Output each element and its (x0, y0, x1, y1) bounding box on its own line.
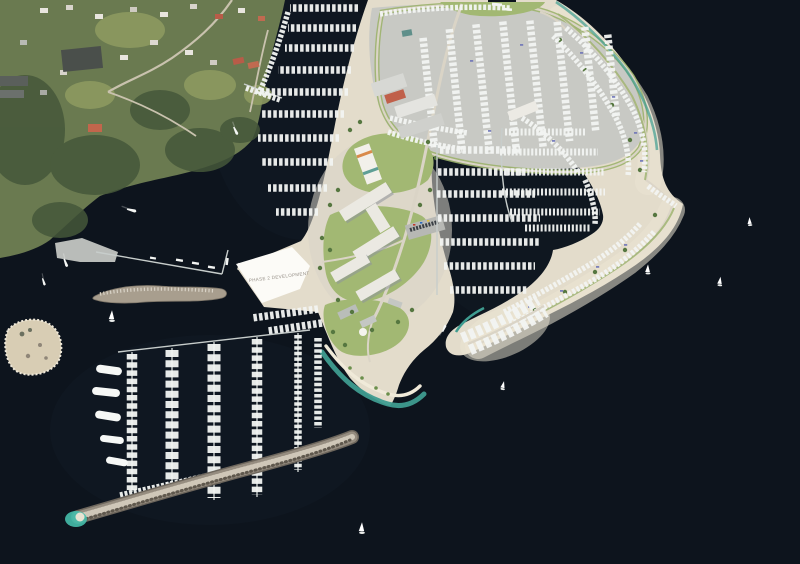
gray-shed (0, 90, 24, 98)
dark-warehouse (61, 46, 103, 72)
white-tent (359, 328, 367, 336)
breakwater-tip-sand (76, 513, 85, 522)
gray-shed (0, 76, 28, 86)
marina-aerial-render: PHASE 2 DEVELOPMENT (0, 0, 800, 564)
marina-aerial-screenshot: PHASE 2 DEVELOPMENT (0, 0, 800, 564)
sandy-island (5, 320, 61, 375)
